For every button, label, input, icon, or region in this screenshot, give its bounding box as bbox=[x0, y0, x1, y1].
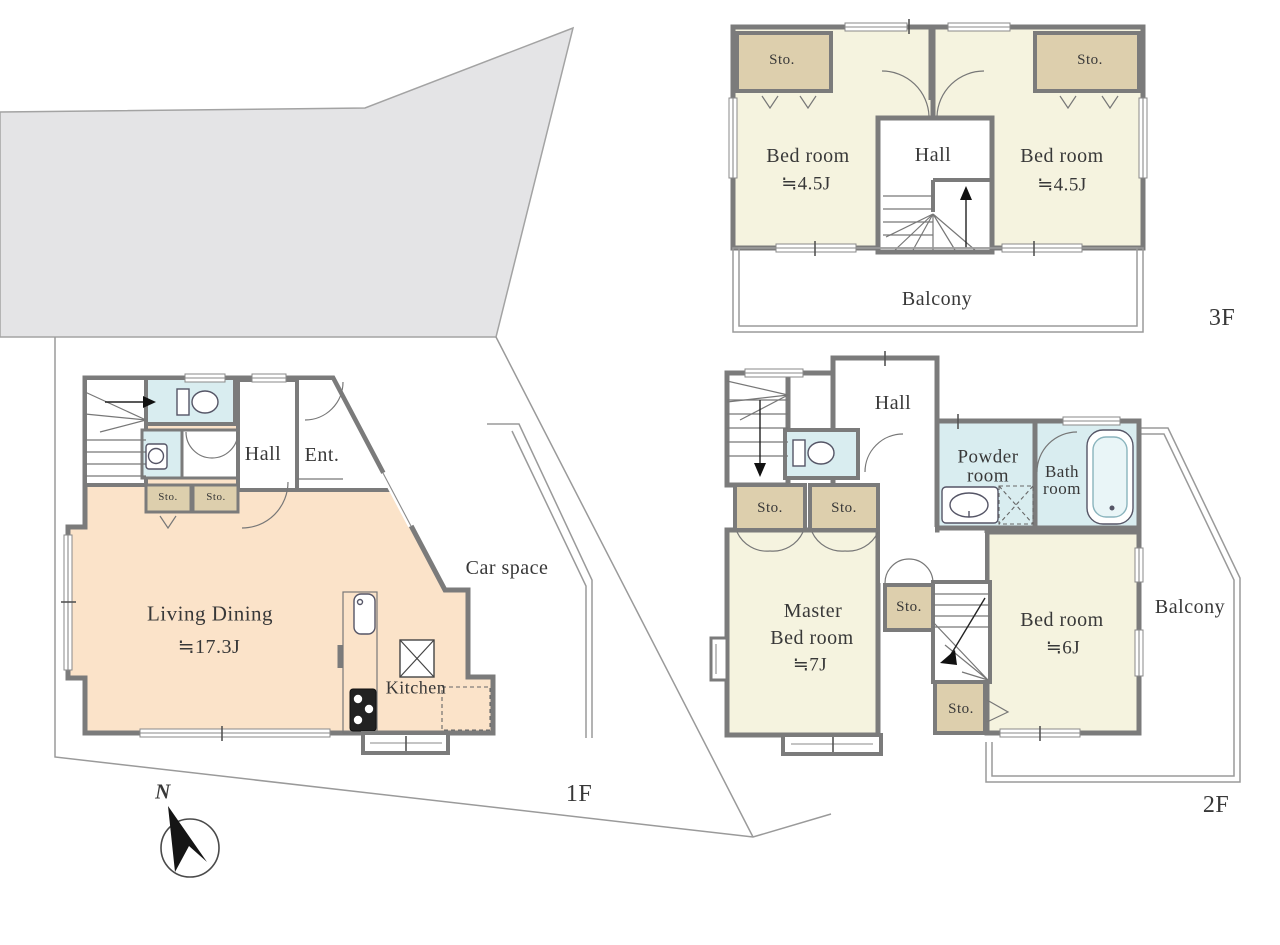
washbasin-icon-2f bbox=[942, 487, 998, 523]
room-label-master-2: Bed room bbox=[770, 628, 853, 650]
staircase-1f bbox=[85, 378, 146, 485]
floor2-plan bbox=[711, 351, 1240, 782]
room-label-sto-2f-3: Sto. bbox=[896, 599, 922, 615]
floor-label-2f: 2F bbox=[1203, 793, 1229, 819]
toilet-icon-1f bbox=[177, 389, 218, 415]
room-label-sto-2f-4: Sto. bbox=[948, 701, 974, 717]
room-size-bedroom-3f-right: ≒4.5J bbox=[1037, 176, 1087, 197]
floor-label-3f: 3F bbox=[1209, 306, 1235, 332]
compass-north-label: N bbox=[155, 781, 171, 804]
room-label-hall-2f: Hall bbox=[875, 393, 911, 415]
room-size-bedroom-3f-left: ≒4.5J bbox=[781, 175, 831, 196]
staircase-center-2f bbox=[933, 582, 990, 682]
room-size-master: ≒7J bbox=[793, 656, 827, 677]
room-label-powder-2: room bbox=[967, 467, 1009, 488]
master-bay-window bbox=[711, 638, 727, 680]
room-label-sto-1f-2: Sto. bbox=[206, 492, 225, 504]
room-label-master-1: Master bbox=[784, 601, 843, 623]
room-label-living-dining: Living Dining bbox=[147, 603, 273, 626]
bathtub-icon bbox=[1087, 430, 1133, 524]
room-size-bedroom-2f: ≒6J bbox=[1046, 639, 1080, 660]
floorplan-drawing bbox=[0, 0, 1280, 945]
room-label-sto-2f-1: Sto. bbox=[757, 500, 783, 516]
room-label-sto-2f-2: Sto. bbox=[831, 500, 857, 516]
room-label-bedroom-2f: Bed room bbox=[1020, 610, 1103, 632]
floorplan-canvas: Sto. Sto. Bed room ≒4.5J Bed room ≒4.5J … bbox=[0, 0, 1280, 945]
room-label-sto-1f-1: Sto. bbox=[158, 492, 177, 504]
washbasin-icon-1f bbox=[146, 444, 167, 469]
toilet-icon-2f bbox=[793, 440, 834, 466]
room-label-kitchen: Kitchen bbox=[386, 678, 446, 697]
room-label-hall-1f: Hall bbox=[245, 444, 281, 466]
room-label-sto-3f-right: Sto. bbox=[1077, 52, 1103, 68]
room-label-sto-3f-left: Sto. bbox=[769, 52, 795, 68]
road-area bbox=[0, 28, 573, 337]
car-approach-lines bbox=[487, 424, 592, 738]
room-label-balcony-2f: Balcony bbox=[1155, 597, 1225, 619]
kitchen-sink-icon bbox=[354, 594, 375, 634]
room-label-entrance: Ent. bbox=[305, 445, 340, 467]
toilet-room-1f bbox=[146, 378, 235, 424]
floor-label-1f: 1F bbox=[566, 782, 592, 808]
room-label-balcony-3f: Balcony bbox=[902, 289, 972, 311]
room-size-living-dining: ≒17.3J bbox=[178, 637, 241, 659]
compass-icon bbox=[161, 806, 219, 877]
room-label-bedroom-3f-right: Bed room bbox=[1020, 146, 1103, 168]
car-space-label: Car space bbox=[466, 558, 549, 580]
hall-room-1f bbox=[238, 380, 297, 490]
anteroom-1f bbox=[182, 430, 238, 478]
room-label-bedroom-3f-left: Bed room bbox=[766, 146, 849, 168]
corridor-2f bbox=[880, 527, 935, 583]
room-label-bath-2: room bbox=[1043, 480, 1081, 498]
landing-2f bbox=[940, 533, 985, 580]
bedroom-6j bbox=[987, 532, 1139, 733]
room-label-hall-3f: Hall bbox=[915, 145, 951, 167]
